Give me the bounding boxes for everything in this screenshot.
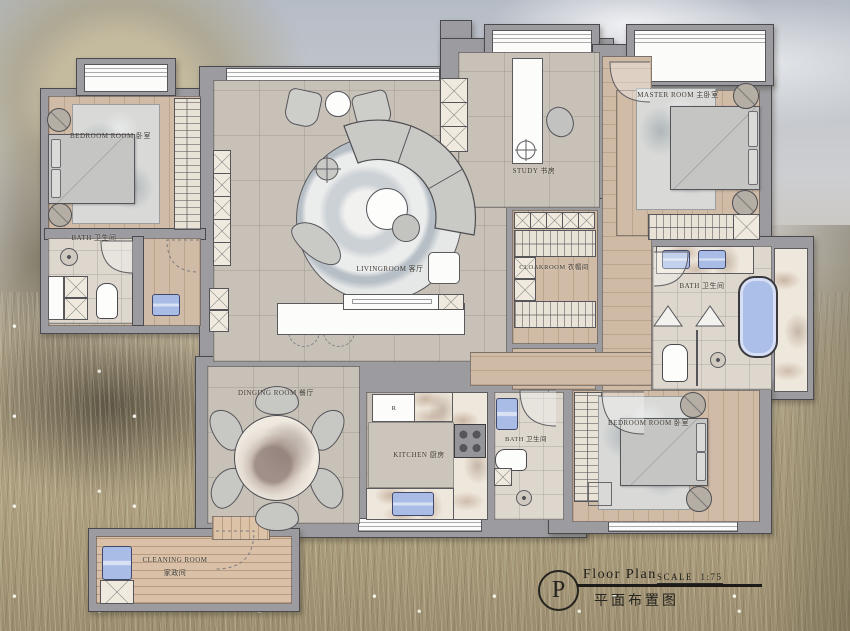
- plan-annotations: [0, 0, 850, 631]
- room-label-study: STUDY 书房: [506, 166, 562, 176]
- plan-scale: SCALE 1:75: [657, 572, 723, 584]
- room-label-cleaning-en: CLEANING ROOM: [96, 556, 254, 564]
- scale-label: SCALE: [657, 572, 693, 582]
- plan-subtitle: 平面布置图: [594, 590, 679, 610]
- door-arc-bedroom-tl: [167, 240, 199, 272]
- room-label-bath-right: BATH 卫生间: [674, 281, 730, 291]
- room-label-master: MASTER ROOM 主卧室: [634, 90, 722, 100]
- title-underline: [577, 584, 762, 587]
- curved-sofa: [344, 120, 475, 235]
- room-label-bath-mid: BATH 卫生间: [494, 433, 558, 443]
- room-label-kitchen: KITCHEN 厨房: [384, 450, 454, 460]
- room-label-dining: DINGING ROOM 餐厅: [238, 388, 314, 398]
- door-arc-bath-mid: [520, 390, 556, 426]
- room-label-bedroom-tl: BEDROOM ROOM 卧室: [70, 131, 140, 141]
- room-label-bedroom-br: BEDROOM ROOM 卧室: [608, 418, 684, 428]
- floor-plan-scene: R: [0, 0, 850, 631]
- room-label-living: LIVINGROOM 客厅: [350, 264, 430, 274]
- room-label-cloakroom: CLOAKROOM 衣帽间: [512, 261, 596, 271]
- plan-title: Floor Plan: [583, 567, 657, 583]
- scale-value: 1:75: [701, 572, 723, 582]
- fold-door: [654, 306, 682, 326]
- door-arc-bath-left: [101, 241, 133, 273]
- desk-chair: [542, 103, 578, 141]
- fold-door: [696, 306, 724, 326]
- room-label-bath-left: BATH 卫生间: [62, 233, 126, 243]
- crosshair-mark: [515, 139, 537, 161]
- title-monogram-letter: P: [552, 577, 565, 604]
- title-monogram: P: [538, 570, 579, 611]
- crosshair-mark: [313, 155, 341, 183]
- room-label-cleaning-cn: 家政间: [96, 568, 254, 578]
